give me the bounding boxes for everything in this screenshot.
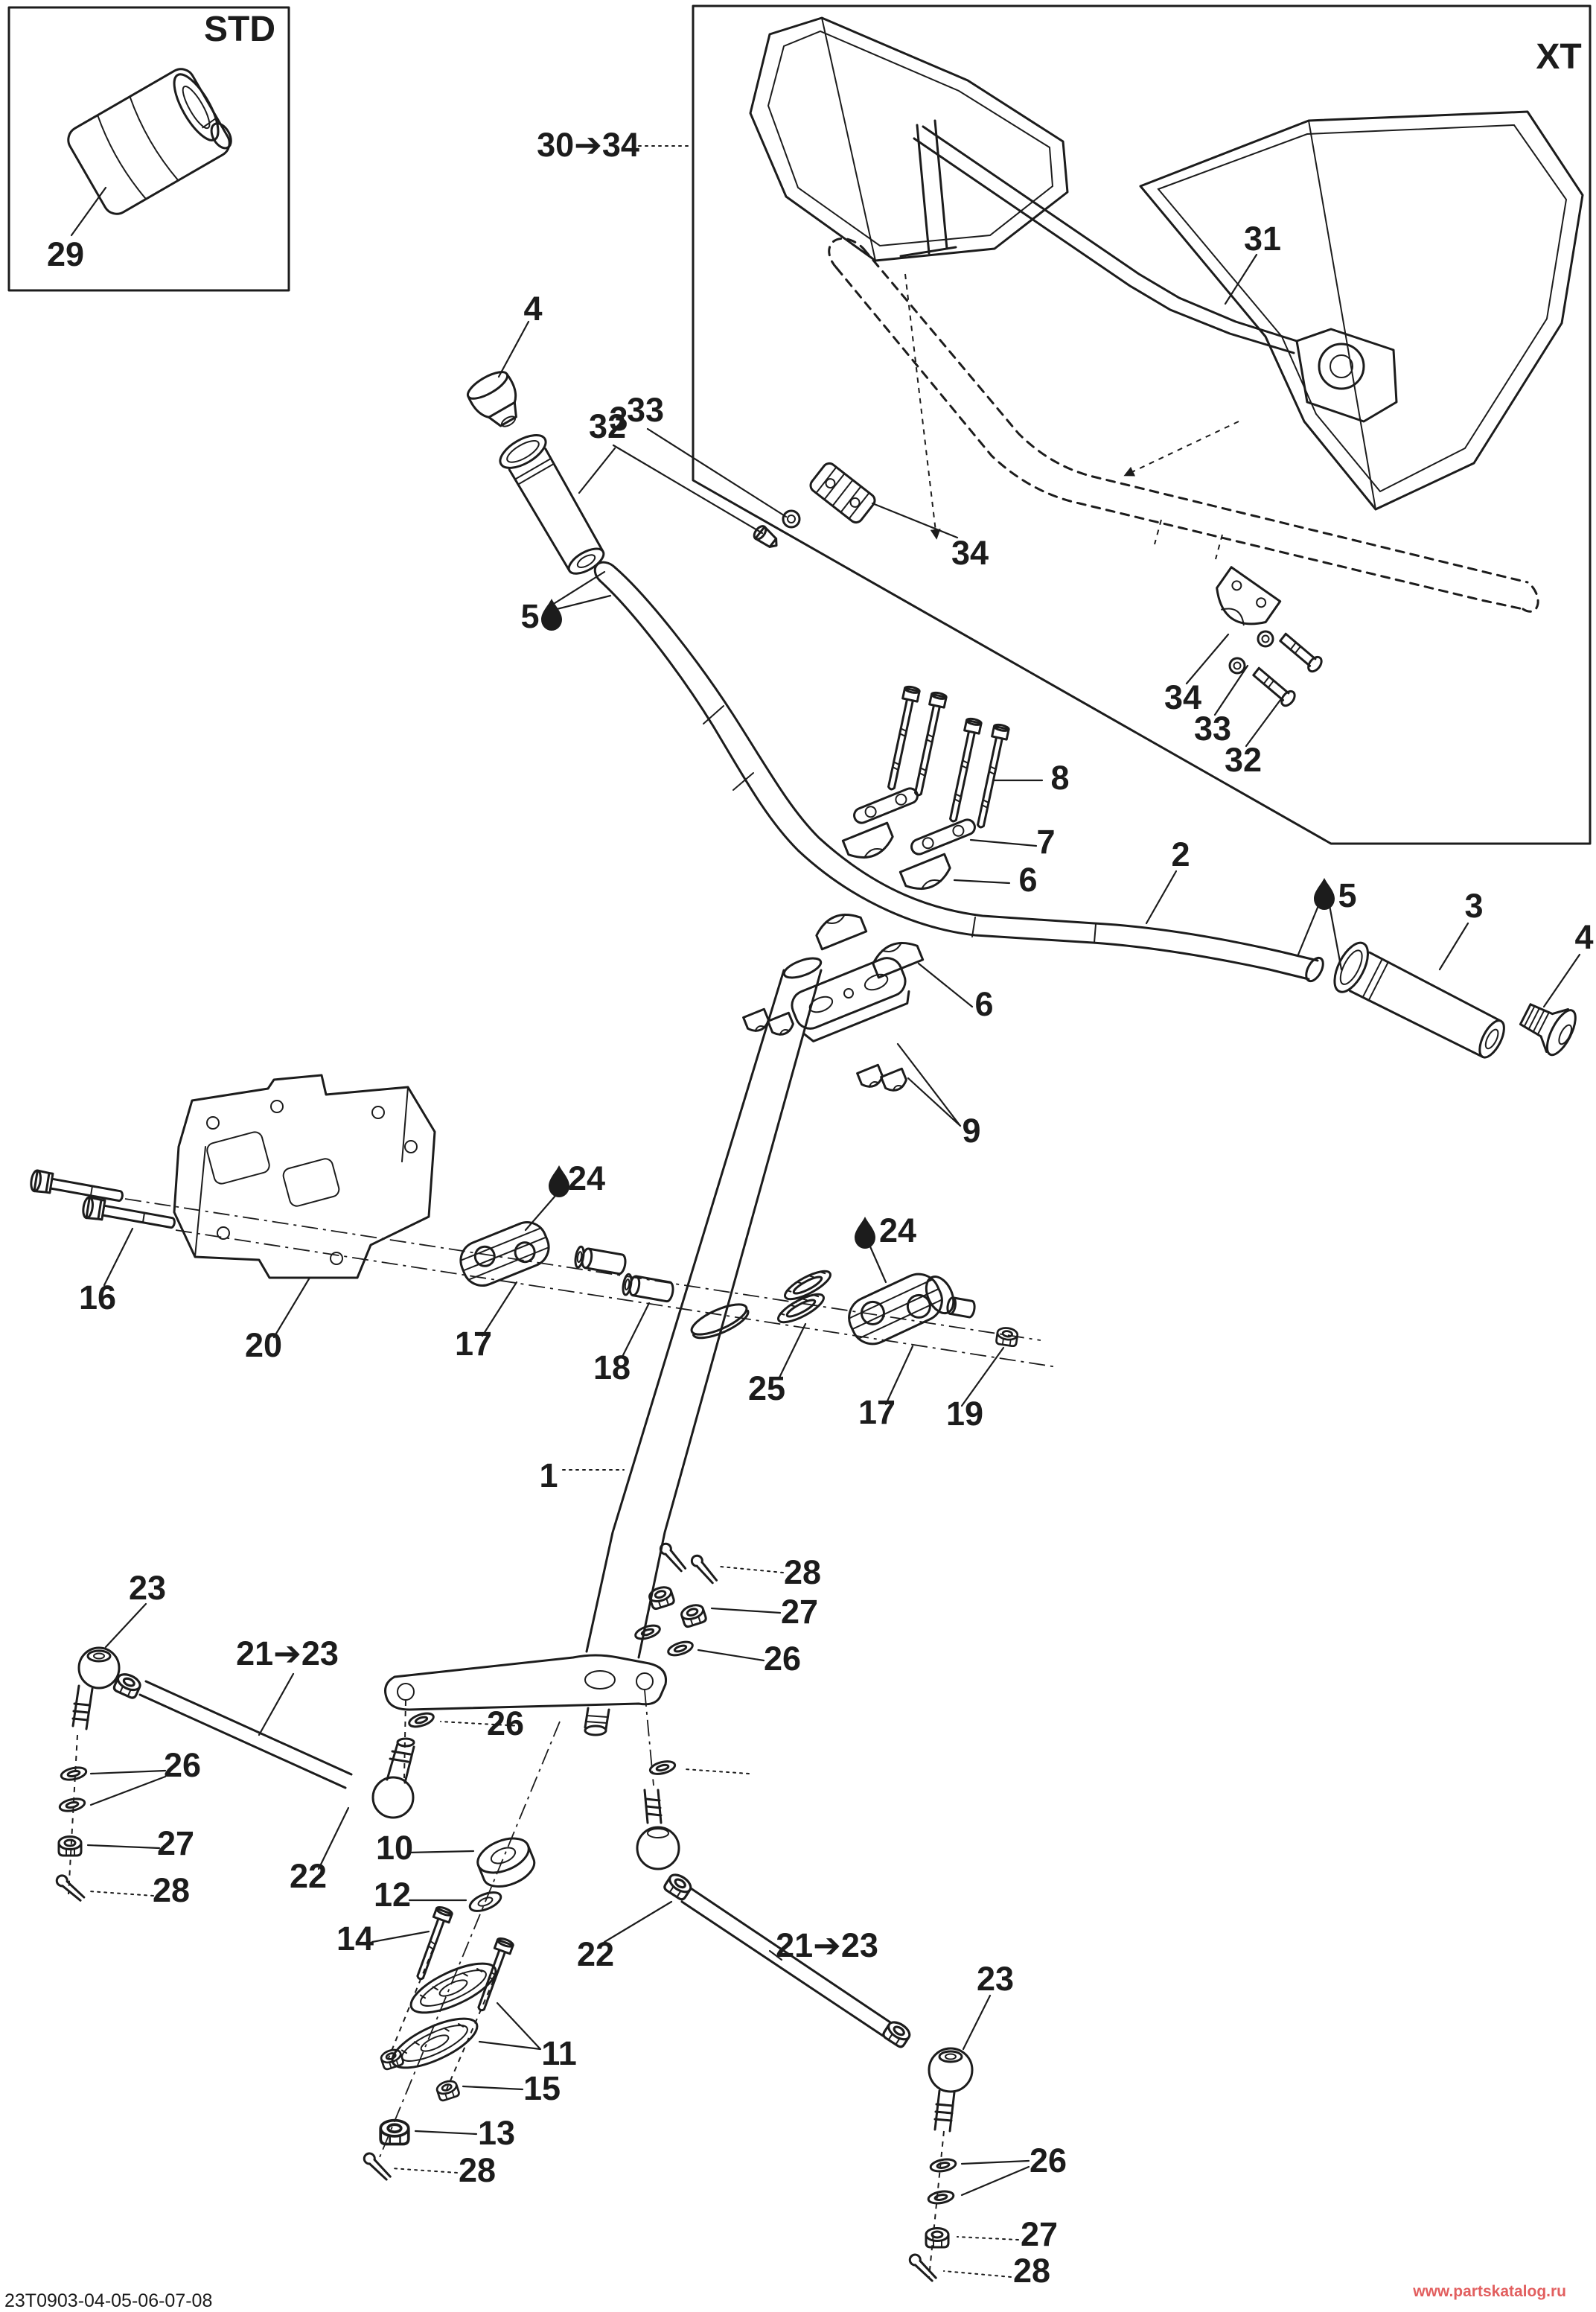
part-label-17: 17 xyxy=(858,1393,896,1431)
part-33-washer-left xyxy=(783,511,799,527)
part-label-27: 27 xyxy=(157,1824,194,1862)
part-34-clamp-right xyxy=(1207,567,1280,636)
part-label-23: 23 xyxy=(977,1960,1014,1998)
part-label-11: 11 xyxy=(541,2034,577,2072)
part-label-28: 28 xyxy=(459,2151,496,2189)
part-20-support-bracket xyxy=(174,1075,435,1278)
part-27-nuts-upper xyxy=(648,1585,706,1628)
part-label-10: 10 xyxy=(376,1829,413,1867)
part-label-25: 25 xyxy=(748,1369,785,1407)
part-label-28: 28 xyxy=(784,1553,821,1591)
part-7-clamp-plates xyxy=(852,786,977,856)
part-label-28: 28 xyxy=(153,1871,190,1909)
leader-31 xyxy=(1225,255,1257,304)
part-label-26: 26 xyxy=(1030,2141,1067,2179)
drawing-code: 23T0903-04-05-06-07-08 xyxy=(4,2290,212,2311)
part-label-16: 16 xyxy=(79,1278,116,1316)
part-26-washer-right-a xyxy=(930,2158,957,2174)
part-label-6: 6 xyxy=(974,985,993,1023)
mount-position-arrow-left xyxy=(905,274,936,538)
part-label-4: 4 xyxy=(523,290,542,328)
part-label-34: 34 xyxy=(951,534,989,572)
part-17-clamp-right xyxy=(842,1263,959,1352)
part-label-31: 31 xyxy=(1244,220,1281,258)
std-inset-title: STD xyxy=(204,10,275,49)
leader-28-right xyxy=(944,2271,1011,2277)
part-33-washer-right-a xyxy=(1258,631,1273,646)
leader-6-lower xyxy=(919,964,972,1007)
leader-2 xyxy=(1146,871,1176,923)
part-10-bearing xyxy=(473,1832,539,1894)
part-26-washer-left-a xyxy=(60,1765,87,1782)
part-label-26: 26 xyxy=(164,1746,201,1784)
part-26-washer-left-b xyxy=(59,1797,86,1813)
part-25-shim-washers xyxy=(775,1266,834,1327)
part-label-32: 32 xyxy=(1225,741,1262,779)
parts-diagram-page: STD XT xyxy=(0,0,1596,2312)
leader-26-left xyxy=(91,1771,165,1805)
leader-24-right xyxy=(869,1245,886,1282)
mount-position-arrow-right xyxy=(1126,421,1239,475)
part-3-grip-left xyxy=(495,429,613,582)
leader-29 xyxy=(71,188,106,235)
leader-6-upper xyxy=(954,880,1009,883)
part-label-20: 20 xyxy=(245,1326,282,1364)
part-6-clamp-halves-upper xyxy=(843,823,954,895)
axis-left-outer-stud xyxy=(68,1735,77,1894)
part-28-pin-center xyxy=(360,2153,395,2181)
part-number-labels: 2930➔34313233343433324358762695341620241… xyxy=(47,126,1594,2290)
part-label-23: 23 xyxy=(129,1569,166,1607)
part-17-clamp-left xyxy=(455,1217,555,1292)
part-label-28: 28 xyxy=(1013,2252,1050,2290)
leader-23-left xyxy=(106,1604,146,1647)
part-label-26: 26 xyxy=(487,1704,524,1742)
leader-28-center xyxy=(392,2168,457,2173)
part-label-30-34: 30➔34 xyxy=(537,126,639,164)
part-label-15: 15 xyxy=(523,2069,561,2107)
lubricant-droplet-icon xyxy=(549,1165,569,1197)
part-32-screw-right-b xyxy=(1251,666,1297,708)
part-label-5: 5 xyxy=(1338,876,1356,914)
part-label-9: 9 xyxy=(962,1112,980,1150)
part-label-33: 33 xyxy=(627,391,664,429)
steering-riser-plate xyxy=(788,954,914,1044)
part-label-7: 7 xyxy=(1036,823,1055,861)
leader-26-upper xyxy=(698,1650,764,1660)
part-label-5: 5 xyxy=(520,597,539,635)
leader-7 xyxy=(971,840,1036,846)
part-28-pin-left xyxy=(54,1875,87,1901)
part-4-grip-cap-left xyxy=(464,367,530,436)
leader-9 xyxy=(898,1044,960,1126)
xt-inset-box: XT xyxy=(613,6,1590,844)
part-label-29: 29 xyxy=(47,235,84,273)
watermark: www.partskatalog.ru xyxy=(1412,2283,1566,2300)
leader-33-right xyxy=(1215,666,1248,715)
leader-23-right xyxy=(963,1996,990,2049)
leader-3-left xyxy=(579,448,615,493)
part-1-steering-column xyxy=(386,955,823,1735)
part-label-22: 22 xyxy=(577,1935,614,1973)
leader-27-left xyxy=(88,1845,159,1848)
part-label-17: 17 xyxy=(455,1325,492,1363)
leader-27-upper xyxy=(712,1608,780,1613)
part-3-grip-right xyxy=(1328,937,1512,1067)
leader-26-right-stud xyxy=(685,1769,749,1774)
leader-34-left xyxy=(872,503,957,538)
part-27-nut-right xyxy=(926,2229,948,2248)
leader-5-right xyxy=(1298,904,1341,969)
steering-diagram-canvas: STD XT xyxy=(0,0,1596,2312)
part-16-bolts xyxy=(30,1170,176,1232)
part-33-washer-right-b xyxy=(1230,658,1245,673)
part-14-bolts xyxy=(412,1905,514,2013)
part-label-27: 27 xyxy=(781,1593,818,1631)
part-label-1: 1 xyxy=(539,1456,558,1494)
leader-27-right xyxy=(957,2237,1018,2240)
lubricant-droplet-icon xyxy=(1314,878,1335,910)
part-26-washer-left-stud xyxy=(408,1711,435,1730)
part-label-22: 22 xyxy=(290,1857,327,1895)
handlebar-ghost-outline xyxy=(829,238,1538,611)
part-34-clamp-left xyxy=(808,461,877,525)
part-13-nut xyxy=(380,2121,409,2144)
axis-clamp-bolt-b xyxy=(176,1230,1057,1367)
leader-28-left xyxy=(89,1891,153,1896)
leader-14 xyxy=(372,1932,429,1942)
part-label-27: 27 xyxy=(1021,2215,1058,2253)
leader-33-left xyxy=(648,429,786,517)
xt-inset-title: XT xyxy=(1536,37,1581,77)
part-32-screw-right-a xyxy=(1277,632,1324,674)
leader-16 xyxy=(104,1229,133,1285)
leader-34-right xyxy=(1187,634,1228,684)
leader-32-left xyxy=(613,445,762,533)
leader-11 xyxy=(479,2003,540,2049)
leader-22-right xyxy=(604,1902,671,1942)
part-label-6: 6 xyxy=(1018,861,1037,899)
main-diagram xyxy=(30,322,1581,2281)
part-label-26: 26 xyxy=(764,1640,801,1678)
part-27-nut-left xyxy=(59,1837,81,1856)
part-label-3: 3 xyxy=(609,400,628,438)
leader-32-right xyxy=(1246,700,1280,746)
clamp-bushing xyxy=(946,1297,975,1318)
leader-21-23-left xyxy=(259,1674,293,1735)
part-29-handlebar-grip-cover xyxy=(63,63,237,219)
part-label-24: 24 xyxy=(568,1159,605,1197)
part-label-4: 4 xyxy=(1574,918,1593,956)
lubricant-droplet-icon xyxy=(855,1217,875,1249)
part-label-2: 2 xyxy=(1171,835,1190,873)
part-28-pin-right xyxy=(906,2254,940,2282)
part-label-14: 14 xyxy=(336,1920,374,1958)
part-label-21-23: 21➔23 xyxy=(776,1926,878,1964)
part-26-washer-right-stud xyxy=(649,1760,677,1777)
leader-4-left xyxy=(499,322,529,377)
leader-26-right xyxy=(962,2161,1029,2195)
part-28-cotter-pins-upper xyxy=(656,1542,722,1584)
leader-13 xyxy=(415,2131,476,2134)
leader-28-upper xyxy=(721,1567,783,1573)
lubricant-droplet-icon xyxy=(541,599,562,631)
part-label-19: 19 xyxy=(946,1395,983,1433)
part-label-24: 24 xyxy=(879,1211,916,1249)
leader-10 xyxy=(408,1851,473,1853)
leader-3-right xyxy=(1440,923,1468,969)
part-label-12: 12 xyxy=(374,1876,411,1914)
part-label-3: 3 xyxy=(1464,887,1483,925)
part-label-21-23: 21➔23 xyxy=(236,1634,339,1672)
leader-5-left xyxy=(552,572,610,609)
leader-24-left xyxy=(526,1196,555,1230)
leader-4-right xyxy=(1544,955,1580,1007)
part-label-13: 13 xyxy=(478,2114,515,2152)
leader-15 xyxy=(463,2086,523,2089)
part-label-8: 8 xyxy=(1050,759,1069,797)
part-label-18: 18 xyxy=(593,1348,631,1386)
part-26-washer-right-b xyxy=(928,2190,954,2206)
